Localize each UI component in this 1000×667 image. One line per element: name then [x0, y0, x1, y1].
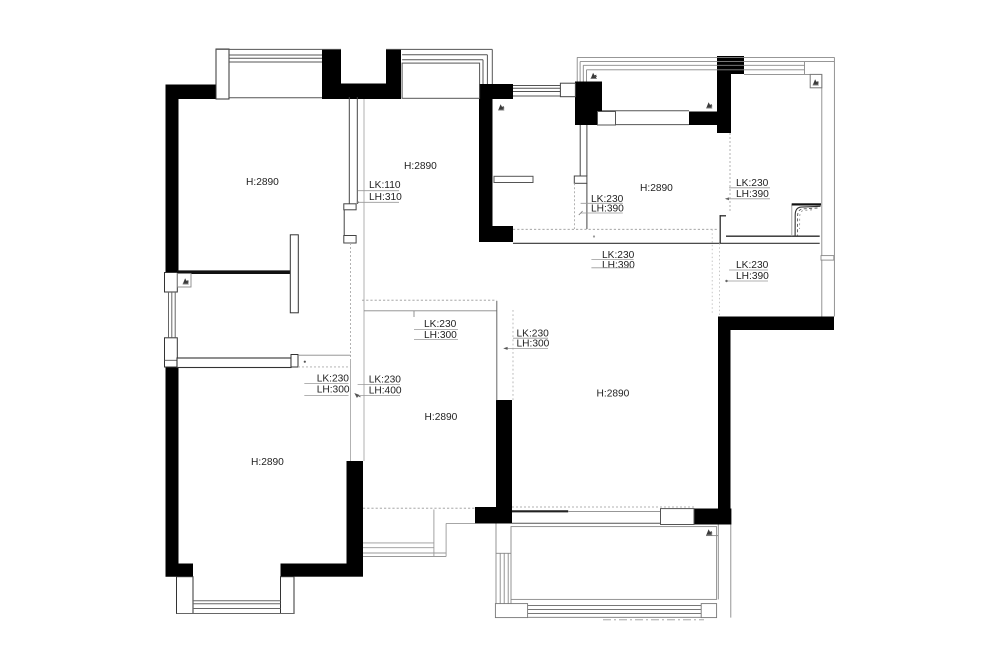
- svg-text:LK:230: LK:230: [736, 178, 769, 189]
- svg-text:H:2890: H:2890: [246, 177, 279, 188]
- svg-text:H:2890: H:2890: [251, 457, 284, 468]
- svg-text:LK:230: LK:230: [424, 319, 457, 330]
- svg-text:LH:310: LH:310: [369, 192, 402, 203]
- svg-text:H:2890: H:2890: [597, 389, 630, 400]
- svg-text:LK:110: LK:110: [369, 180, 401, 191]
- svg-text:LH:400: LH:400: [369, 386, 402, 397]
- svg-text:LH:390: LH:390: [736, 189, 769, 200]
- svg-text:LH:390: LH:390: [602, 260, 635, 271]
- svg-text:H:2890: H:2890: [640, 183, 673, 194]
- svg-text:LK:230: LK:230: [317, 374, 350, 385]
- svg-text:LK:230: LK:230: [369, 375, 402, 386]
- svg-text:LK:230: LK:230: [736, 260, 769, 271]
- svg-text:LH:300: LH:300: [317, 385, 350, 396]
- svg-text:LH:300: LH:300: [517, 339, 550, 350]
- svg-text:LH:390: LH:390: [736, 271, 769, 282]
- svg-text:H:2890: H:2890: [404, 161, 437, 172]
- svg-text:H:2890: H:2890: [425, 412, 458, 423]
